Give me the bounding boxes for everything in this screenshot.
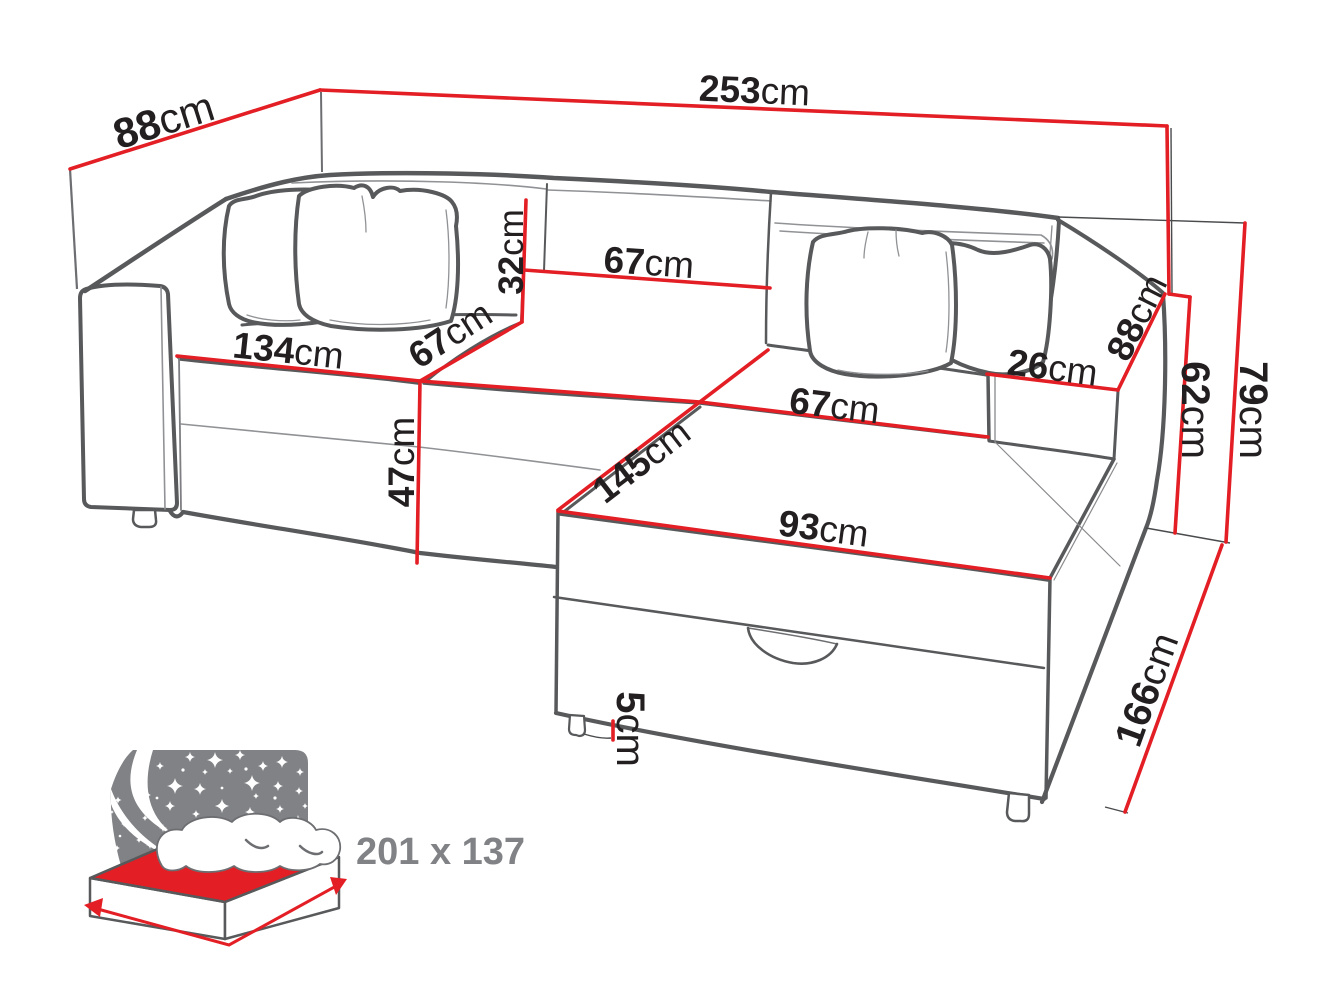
svg-text:32cm: 32cm xyxy=(492,209,531,295)
svg-text:5cm: 5cm xyxy=(608,691,652,767)
svg-text:62cm: 62cm xyxy=(1173,361,1217,459)
svg-text:47cm: 47cm xyxy=(381,417,422,507)
svg-text:79cm: 79cm xyxy=(1231,361,1275,459)
svg-text:201 x 137: 201 x 137 xyxy=(356,831,525,873)
svg-text:253cm: 253cm xyxy=(698,68,811,114)
svg-text:67cm: 67cm xyxy=(602,239,695,286)
